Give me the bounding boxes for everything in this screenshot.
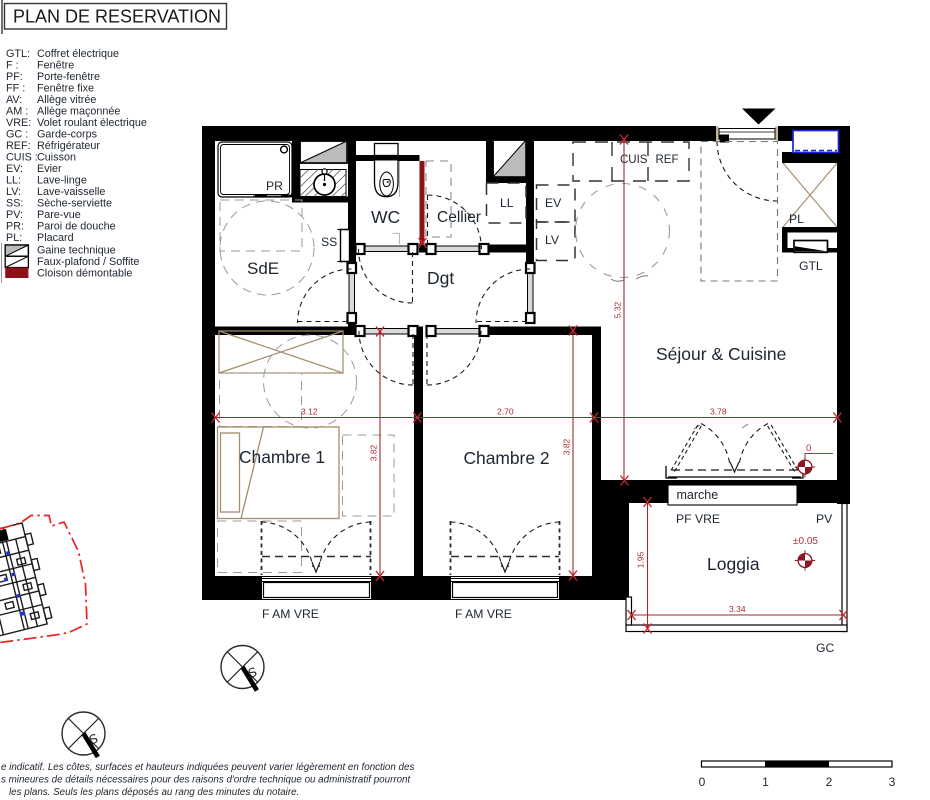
svg-text:Coffret électrique: Coffret électrique — [37, 48, 119, 60]
svg-text:s mineures de détails nécessai: s mineures de détails nécessaires pour d… — [1, 775, 411, 786]
svg-text:Lave-linge: Lave-linge — [37, 175, 87, 187]
svg-text:Dgt: Dgt — [427, 268, 454, 288]
svg-text:VRE:: VRE: — [6, 117, 31, 129]
svg-text:les plans. Seuls les plans dép: les plans. Seuls les plans déposés au ra… — [9, 787, 299, 798]
svg-text:EV:: EV: — [6, 163, 23, 175]
svg-text:AM :: AM : — [6, 106, 28, 118]
svg-text:0: 0 — [699, 775, 706, 789]
svg-text:SS:: SS: — [6, 198, 23, 210]
svg-text:LL: LL — [500, 196, 514, 210]
svg-text:F AM VRE: F AM VRE — [455, 607, 512, 621]
svg-text:PLAN DE RESERVATION: PLAN DE RESERVATION — [13, 7, 221, 27]
svg-text:5.32: 5.32 — [613, 301, 623, 318]
svg-text:GC :: GC : — [6, 129, 28, 141]
svg-text:Gaine technique: Gaine technique — [37, 245, 116, 257]
svg-text:3: 3 — [889, 775, 896, 789]
svg-text:Allège vitrée: Allège vitrée — [37, 94, 96, 106]
svg-text:PV:: PV: — [6, 209, 23, 221]
svg-text:REF: REF — [656, 154, 679, 166]
svg-text:3.12: 3.12 — [301, 407, 318, 417]
svg-text:Cellier: Cellier — [437, 209, 481, 226]
svg-text:GC: GC — [816, 641, 834, 655]
svg-text:3.78: 3.78 — [710, 407, 727, 417]
svg-text:Séjour & Cuisine: Séjour & Cuisine — [656, 344, 786, 364]
svg-text:Paroi de douche: Paroi de douche — [37, 221, 116, 233]
svg-text:SS: SS — [321, 235, 337, 249]
svg-text:3.34: 3.34 — [729, 604, 746, 614]
svg-text:Cuisson: Cuisson — [37, 152, 76, 164]
svg-text:Fenêtre: Fenêtre — [37, 60, 74, 72]
svg-text:Cloison démontable: Cloison démontable — [37, 268, 132, 280]
svg-text:Garde-corps: Garde-corps — [37, 129, 98, 141]
svg-text:PL:: PL: — [6, 232, 22, 244]
svg-text:LV:: LV: — [6, 186, 21, 198]
svg-text:Evier: Evier — [37, 163, 62, 175]
svg-text:Loggia: Loggia — [707, 554, 760, 574]
svg-text:Porte-fenêtre: Porte-fenêtre — [37, 71, 100, 83]
svg-text:0: 0 — [806, 443, 811, 454]
svg-text:1: 1 — [762, 775, 769, 789]
svg-text:Pare-vue: Pare-vue — [37, 209, 81, 221]
svg-text:marche: marche — [677, 488, 719, 502]
svg-text:EV: EV — [545, 196, 562, 210]
svg-text:3.82: 3.82 — [562, 438, 572, 455]
svg-text:1.95: 1.95 — [636, 551, 646, 568]
svg-text:PL: PL — [789, 212, 804, 226]
svg-text:PF VRE: PF VRE — [676, 512, 720, 526]
svg-text:LV: LV — [545, 233, 560, 247]
svg-text:Lave-vaisselle: Lave-vaisselle — [37, 186, 105, 198]
svg-text:AV:: AV: — [6, 94, 22, 106]
svg-text:Chambre 1: Chambre 1 — [239, 447, 325, 467]
svg-text:PF:: PF: — [6, 71, 23, 83]
svg-text:Réfrigérateur: Réfrigérateur — [37, 140, 100, 152]
svg-text:Allège maçonnée: Allège maçonnée — [37, 106, 120, 118]
svg-text:Chambre 2: Chambre 2 — [464, 448, 550, 468]
svg-text:CUIS :: CUIS : — [6, 152, 38, 164]
svg-text:GTL: GTL — [799, 259, 823, 273]
svg-text:REF:: REF: — [6, 140, 31, 152]
svg-text:Volet roulant électrique: Volet roulant électrique — [37, 117, 147, 129]
svg-text:Sèche-serviette: Sèche-serviette — [37, 198, 112, 210]
svg-text:WC: WC — [371, 207, 400, 227]
svg-text:Placard: Placard — [37, 232, 74, 244]
svg-text:PR:: PR: — [6, 221, 24, 233]
svg-text:PR: PR — [266, 179, 283, 193]
svg-text:Fenêtre fixe: Fenêtre fixe — [37, 83, 94, 95]
svg-text:SdE: SdE — [247, 259, 279, 278]
svg-text:LL:: LL: — [6, 175, 21, 187]
svg-text:2.70: 2.70 — [497, 407, 514, 417]
svg-text:PV: PV — [816, 512, 833, 526]
svg-text:FF :: FF : — [6, 83, 25, 95]
svg-text:F AM VRE: F AM VRE — [262, 607, 319, 621]
svg-text:GTL:: GTL: — [6, 48, 30, 60]
svg-text:±0.05: ±0.05 — [793, 536, 818, 547]
svg-text:3.82: 3.82 — [369, 444, 379, 461]
svg-text:Faux-plafond / Soffite: Faux-plafond / Soffite — [37, 256, 139, 268]
svg-text:2: 2 — [826, 775, 833, 789]
svg-text:e indicatif. Les côtes, surfac: e indicatif. Les côtes, surfaces et haut… — [1, 762, 414, 773]
svg-text:F :: F : — [6, 60, 19, 72]
